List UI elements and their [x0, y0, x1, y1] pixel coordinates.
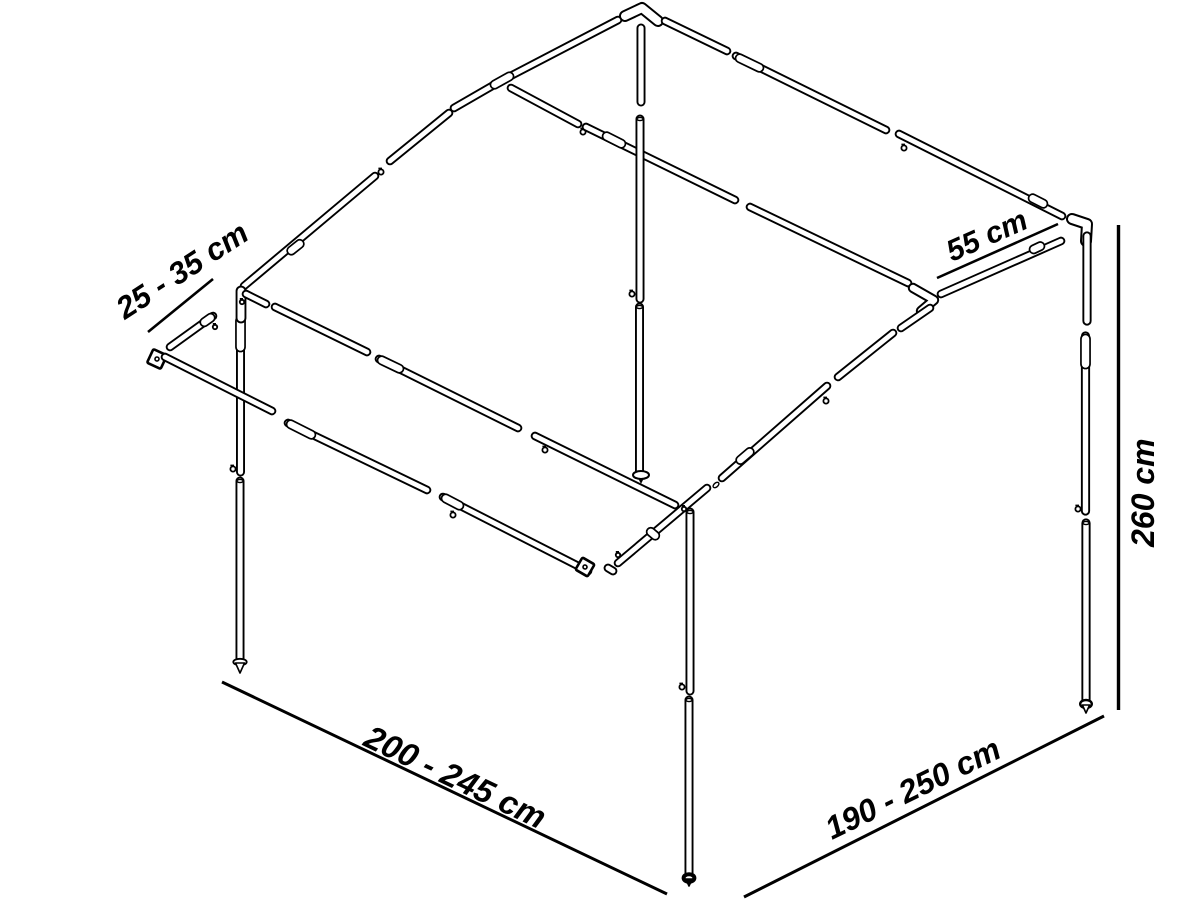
svg-text:260 cm: 260 cm	[1125, 438, 1161, 548]
